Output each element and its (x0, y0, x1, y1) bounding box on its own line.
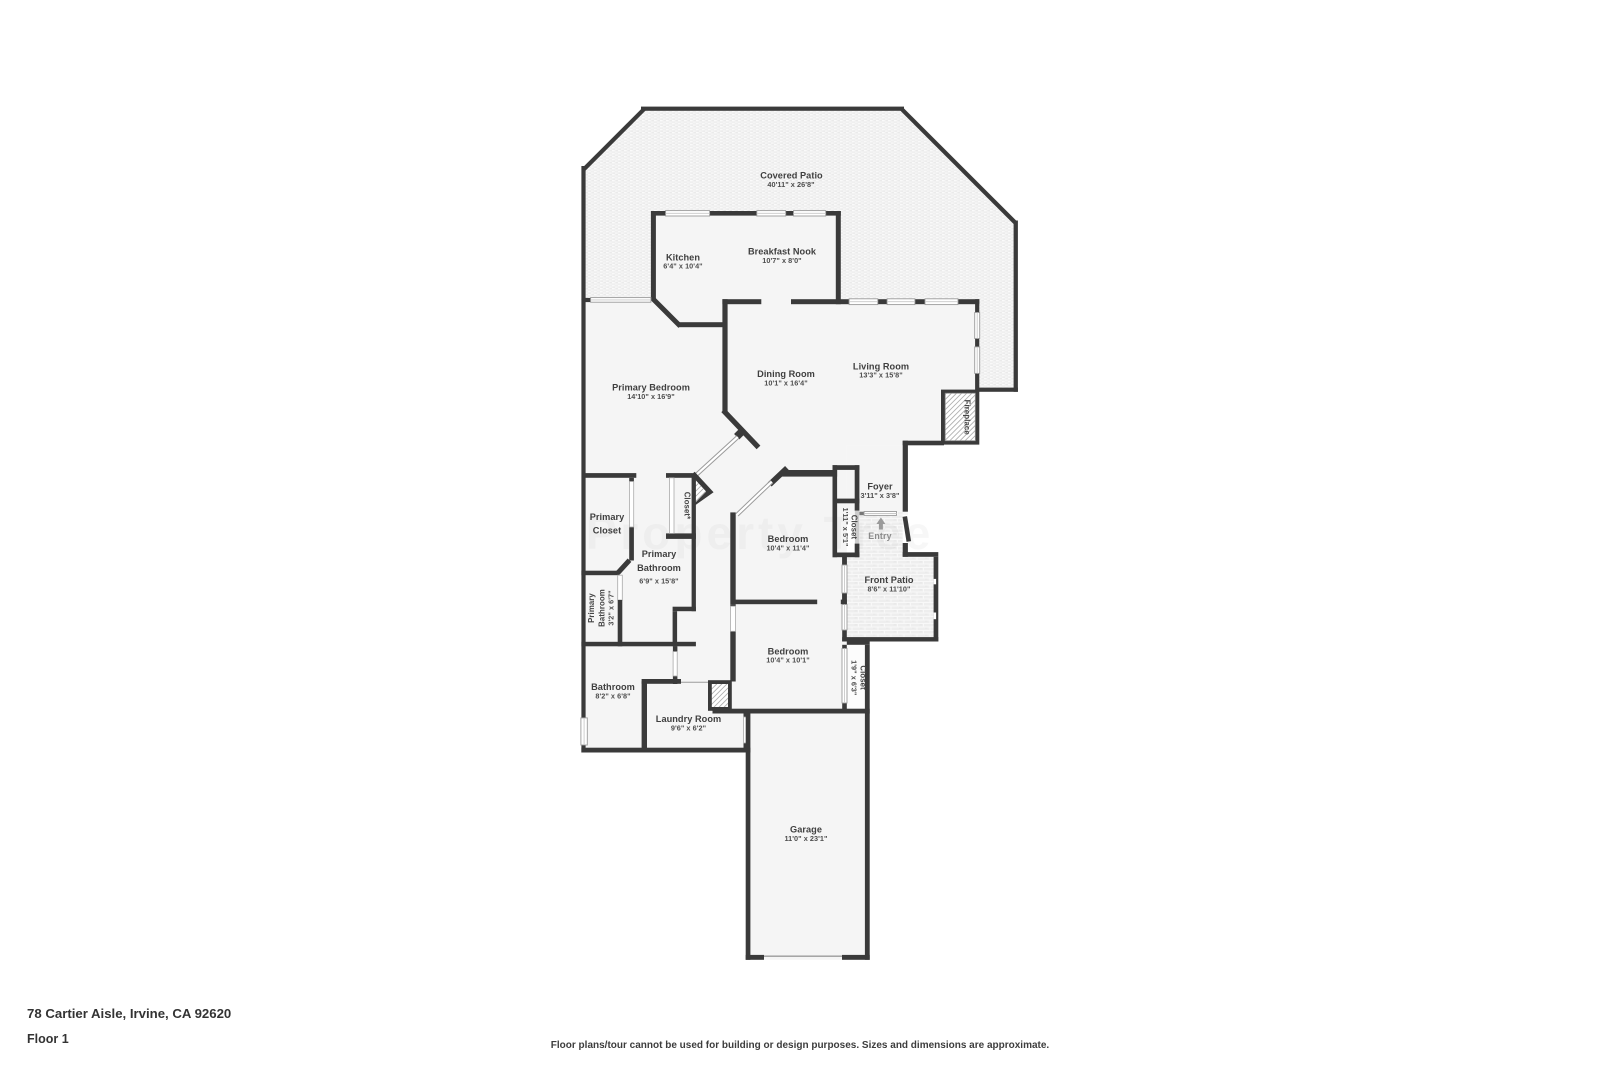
svg-text:1'9" x 6'3": 1'9" x 6'3" (850, 660, 859, 695)
svg-text:10'1" x 16'4": 10'1" x 16'4" (764, 378, 808, 387)
svg-text:14'10" x 16'9": 14'10" x 16'9" (627, 392, 675, 401)
svg-text:Primary: Primary (590, 512, 625, 522)
svg-text:3'11" x 3'8": 3'11" x 3'8" (861, 491, 900, 500)
svg-text:Bathroom: Bathroom (597, 589, 606, 627)
svg-text:8'2" x 6'8": 8'2" x 6'8" (595, 691, 630, 700)
svg-text:13'3" x 15'8": 13'3" x 15'8" (859, 371, 903, 380)
svg-text:10'7" x 8'0": 10'7" x 8'0" (762, 256, 801, 265)
svg-text:11'0" x 23'1": 11'0" x 23'1" (784, 834, 827, 843)
svg-text:Closet: Closet (858, 665, 867, 690)
svg-text:6'4" x 10'4": 6'4" x 10'4" (663, 262, 702, 271)
svg-text:10'4" x 11'4": 10'4" x 11'4" (766, 543, 809, 552)
svg-text:Primary: Primary (587, 593, 596, 623)
svg-text:40'11" x 26'8": 40'11" x 26'8" (767, 180, 814, 189)
svg-text:1'11" x 5'1": 1'11" x 5'1" (841, 508, 850, 547)
svg-text:Fireplace: Fireplace (962, 400, 971, 436)
svg-text:8'6" x 11'10": 8'6" x 11'10" (867, 584, 910, 593)
svg-text:Bathroom: Bathroom (637, 563, 681, 573)
svg-text:Entry: Entry (868, 531, 892, 541)
svg-text:6'9" x 15'8": 6'9" x 15'8" (639, 576, 678, 585)
svg-text:3'2" x 6'7": 3'2" x 6'7" (606, 590, 615, 625)
svg-text:Closet: Closet (593, 526, 621, 536)
svg-text:Closet*: Closet* (682, 492, 691, 520)
svg-text:Primary: Primary (642, 549, 677, 559)
svg-text:10'4" x 10'1": 10'4" x 10'1" (766, 656, 810, 665)
svg-text:9'6" x 6'2": 9'6" x 6'2" (671, 723, 706, 732)
